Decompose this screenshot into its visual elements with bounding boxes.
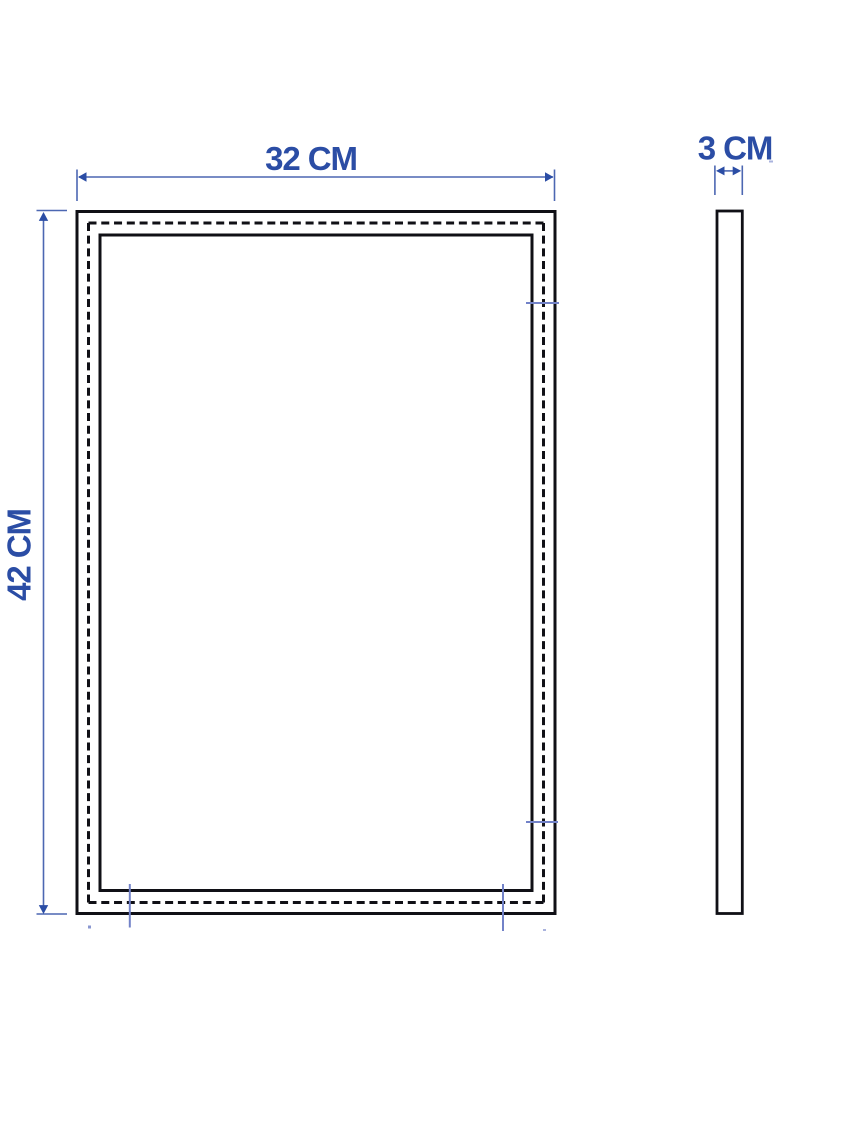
svg-text:3 CM: 3 CM [698, 130, 772, 167]
svg-text:32 CM: 32 CM [265, 140, 357, 177]
svg-text:42 CM: 42 CM [1, 509, 38, 601]
